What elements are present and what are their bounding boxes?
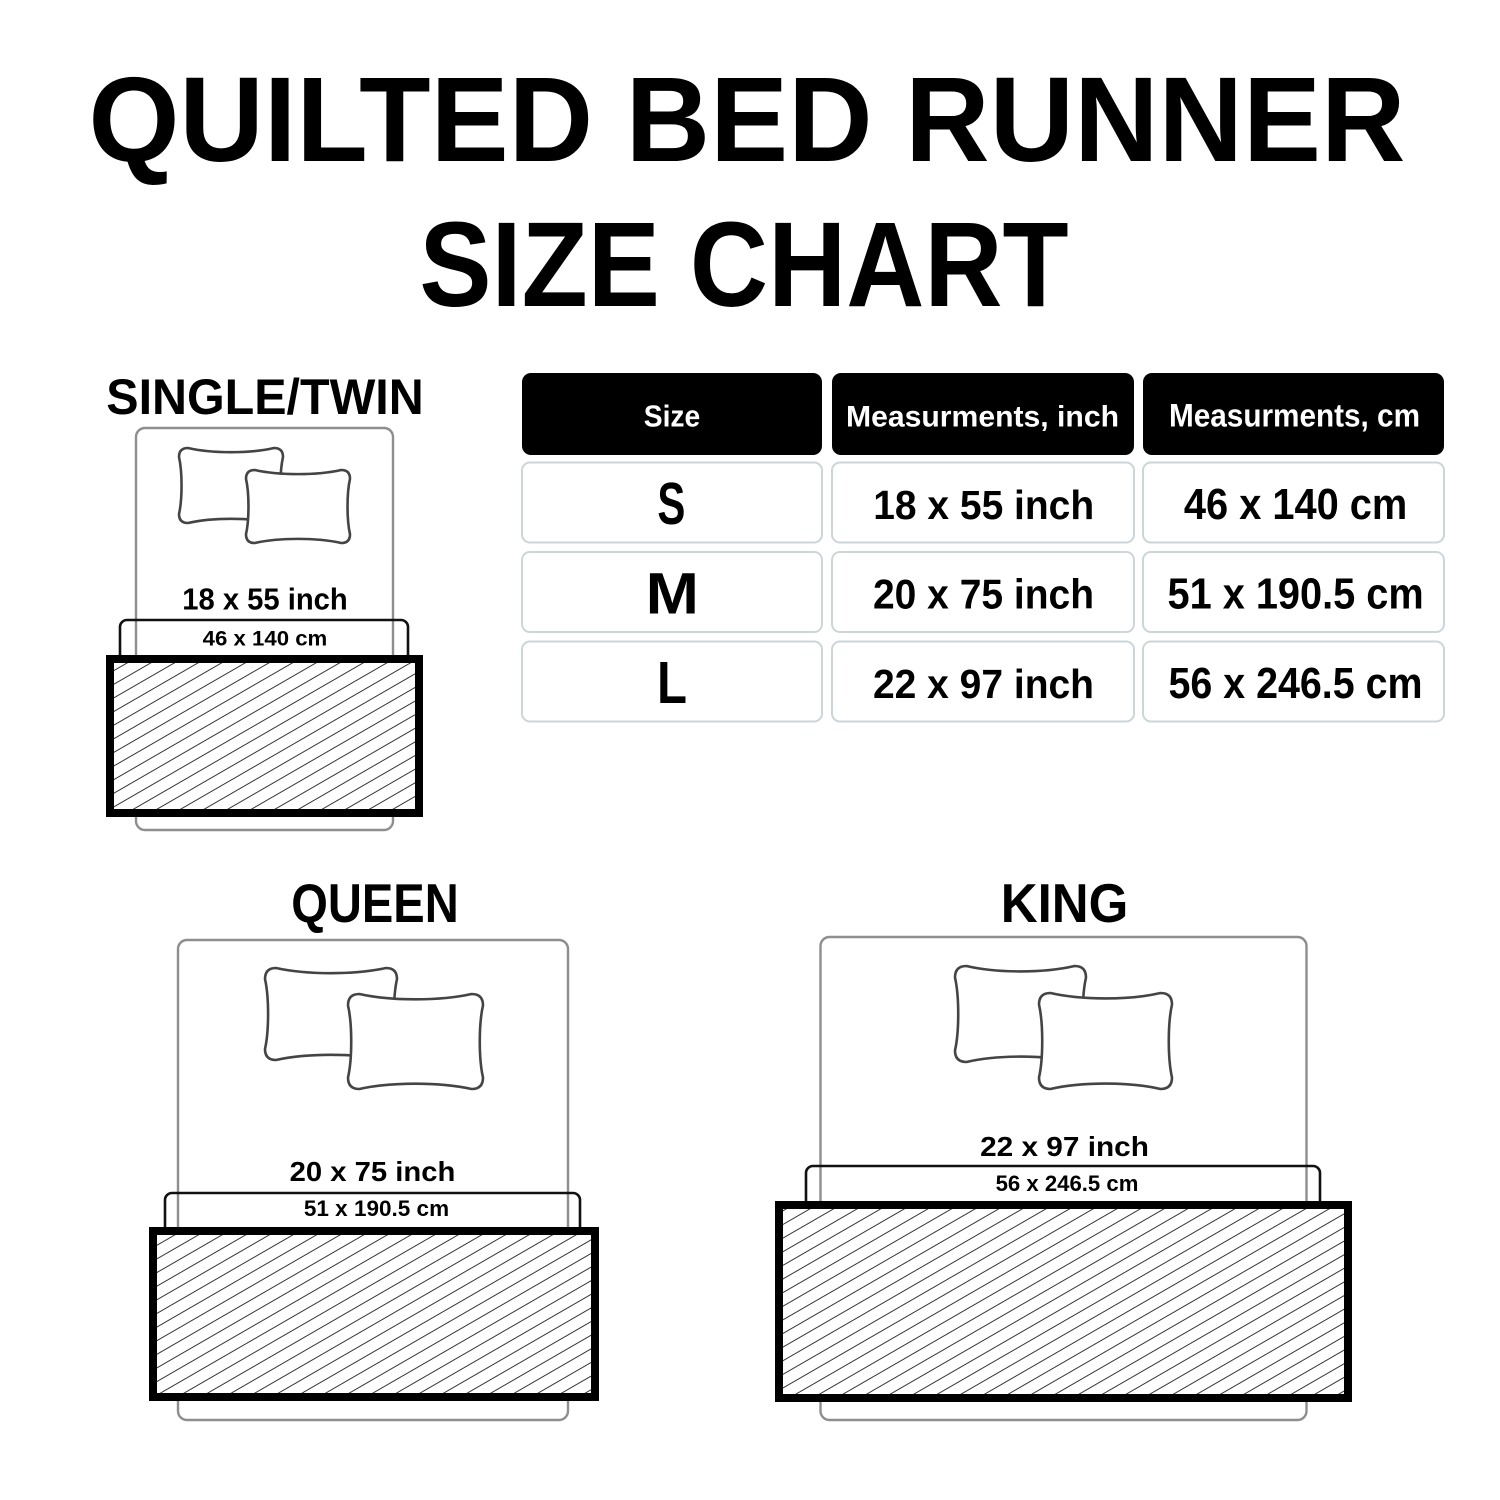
svg-text:QUILTED BED RUNNER: QUILTED BED RUNNER <box>88 53 1405 187</box>
svg-text:51 x 190.5 cm: 51 x 190.5 cm <box>304 1196 449 1221</box>
svg-text:46 x 140 cm: 46 x 140 cm <box>203 626 328 650</box>
svg-text:Measurments, cm: Measurments, cm <box>1169 397 1420 434</box>
svg-text:KING: KING <box>1001 872 1129 934</box>
svg-text:56 x 246.5 cm: 56 x 246.5 cm <box>1169 659 1423 708</box>
svg-text:46 x 140 cm: 46 x 140 cm <box>1184 480 1407 529</box>
svg-text:Measurments, inch: Measurments, inch <box>846 401 1119 434</box>
svg-text:SIZE CHART: SIZE CHART <box>419 198 1068 332</box>
svg-text:20 x 75 inch: 20 x 75 inch <box>873 571 1094 618</box>
svg-text:M: M <box>646 562 699 627</box>
svg-text:L: L <box>657 649 687 716</box>
svg-text:22 x 97 inch: 22 x 97 inch <box>980 1131 1149 1162</box>
svg-text:22 x 97 inch: 22 x 97 inch <box>873 661 1094 707</box>
svg-text:18 x 55 inch: 18 x 55 inch <box>182 583 347 617</box>
svg-text:51 x 190.5 cm: 51 x 190.5 cm <box>1168 570 1424 619</box>
svg-text:Size: Size <box>644 400 701 434</box>
svg-text:56 x 246.5 cm: 56 x 246.5 cm <box>996 1171 1139 1196</box>
svg-text:QUEEN: QUEEN <box>291 872 458 934</box>
svg-text:SINGLE/TWIN: SINGLE/TWIN <box>106 369 423 425</box>
svg-text:20 x 75 inch: 20 x 75 inch <box>290 1156 456 1187</box>
svg-text:S: S <box>657 470 685 537</box>
svg-text:18 x 55 inch: 18 x 55 inch <box>873 482 1094 528</box>
